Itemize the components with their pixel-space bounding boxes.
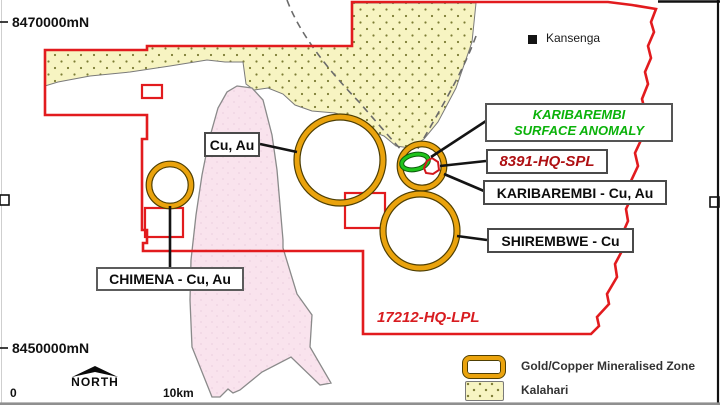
gold-copper-zone-swatch — [463, 356, 505, 378]
karibarembi-label: KARIBAREMBI - Cu, Au — [497, 185, 654, 201]
grid-label-8470000mn: 8470000mN — [12, 14, 89, 30]
scale-start-label: 0 — [10, 386, 17, 400]
legend-label-mineralised-zone: Gold/Copper Mineralised Zone — [521, 359, 695, 373]
chimena-label: CHIMENA - Cu, Au — [109, 271, 231, 287]
shirembwe-label: SHIREMBWE - Cu — [501, 233, 619, 249]
spl-label: 8391-HQ-SPL — [499, 153, 594, 170]
spl-label-box: 8391-HQ-SPL — [486, 149, 608, 174]
licence-number-label: 17212-HQ-LPL — [377, 309, 480, 326]
mineralised-zone-chimena — [146, 161, 194, 209]
legend-label-kalahari: Kalahari — [521, 383, 568, 397]
claim-outline-chimena — [145, 208, 183, 237]
north-label: NORTH — [71, 375, 119, 389]
chimena-label-box: CHIMENA - Cu, Au — [96, 267, 244, 291]
leader-anomaly — [431, 121, 486, 157]
cu-au-label: Cu, Au — [210, 137, 255, 153]
surface-anomaly-label-box: KARIBAREMBI SURFACE ANOMALY — [485, 103, 673, 142]
cu-au-label-box: Cu, Au — [204, 132, 260, 157]
kansenga-town-marker — [528, 35, 537, 44]
mineralised-zone-shirembwe — [380, 191, 460, 271]
exploration-map: 8470000mN 8450000mN Kansenga Cu, Au KARI… — [0, 0, 720, 405]
karibarembi-label-box: KARIBAREMBI - Cu, Au — [483, 180, 667, 205]
mineralised-zone-central — [294, 114, 386, 206]
leader-karibarembi — [444, 174, 484, 191]
claim-outline-northwest — [142, 85, 162, 98]
kansenga-town-label: Kansenga — [546, 31, 600, 45]
surface-anomaly-label-line1: KARIBAREMBI — [533, 107, 625, 123]
surface-anomaly-label-line2: SURFACE ANOMALY — [514, 123, 644, 139]
kalahari-swatch — [465, 381, 504, 401]
scale-end-label: 10km — [163, 386, 194, 400]
shirembwe-label-box: SHIREMBWE - Cu — [487, 228, 634, 253]
frame-marker-left — [0, 195, 9, 205]
leader-shirembwe — [457, 236, 487, 240]
grid-label-8450000mn: 8450000mN — [12, 340, 89, 356]
